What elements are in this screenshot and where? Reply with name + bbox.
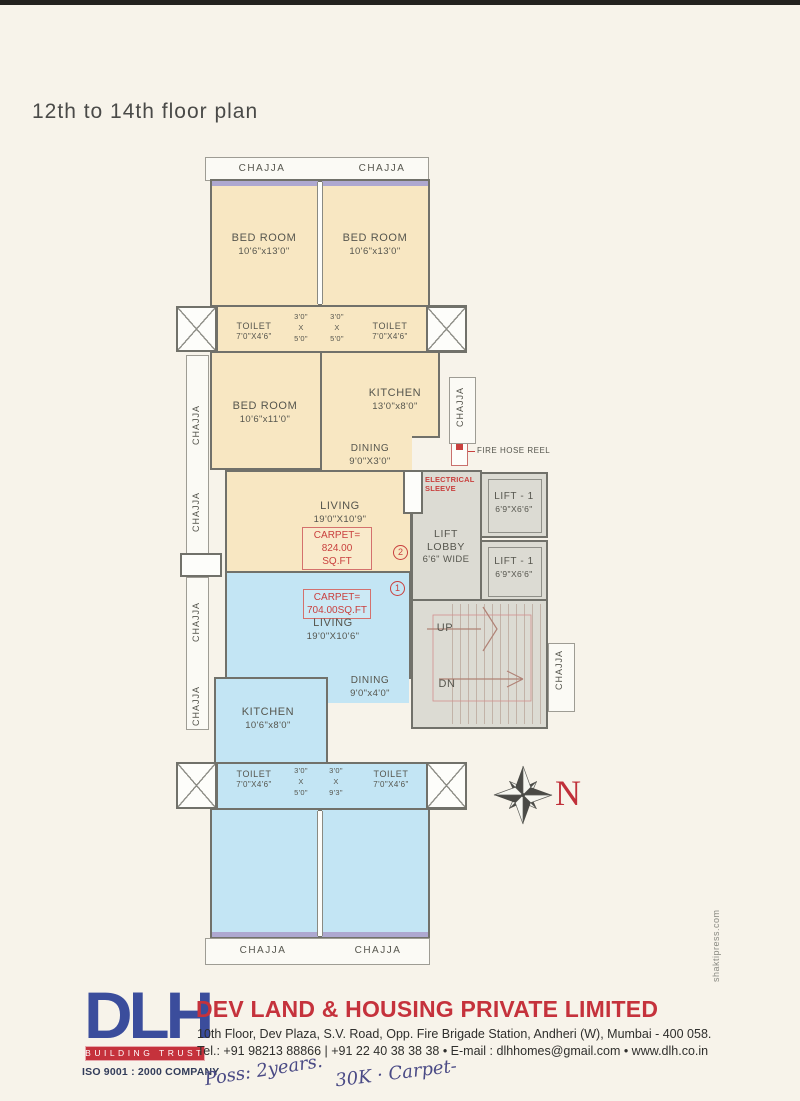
room-dims: 10'6"x8'0" xyxy=(218,720,318,732)
room-dims: 7'0"X4'6" xyxy=(218,780,290,790)
label-passage-t2: 3'0" X 5'0" xyxy=(324,312,350,345)
label-living-b: LIVING 19'0"X10'6" xyxy=(288,617,378,643)
dim-line: X xyxy=(288,323,314,334)
room-name: TOILET xyxy=(352,321,428,332)
carpet-line: 704.00SQ.FT xyxy=(307,604,367,617)
room-name: TOILET xyxy=(218,769,290,780)
room-name: LIVING xyxy=(288,617,378,631)
room-dims: 7'0"X4'6" xyxy=(354,780,428,790)
dim-line: 5'0" xyxy=(324,334,350,345)
chajja-label: CHAJJA xyxy=(191,492,201,532)
label-lift-lobby: LIFT LOBBY 6'6" WIDE xyxy=(415,528,477,566)
label-bedroom-t2: BED ROOM 10'6"x13'0" xyxy=(325,232,425,258)
room-dims: 10'6"x13'0" xyxy=(325,246,425,258)
dim-line: 9'3" xyxy=(322,788,350,799)
dim-line: 5'0" xyxy=(288,788,314,799)
carpet-line: 824.00 SQ.FT xyxy=(306,542,368,568)
room-dims: 9'0"x4'0" xyxy=(335,688,405,700)
label-dining-t: DINING 9'0"X3'0" xyxy=(335,443,405,467)
scanned-page: 12th to 14th floor plan CHAJJA CHAJJA xyxy=(0,0,800,1101)
chajja-label: CHAJJA xyxy=(228,945,298,956)
wall-cavity xyxy=(317,182,323,304)
dlh-logo: DLH xyxy=(84,986,210,1044)
room-name: LIVING xyxy=(295,500,385,514)
label-dining-b: DINING 9'0"x4'0" xyxy=(335,675,405,699)
room-dims: 10'6"x11'0" xyxy=(215,414,315,426)
room-dims: 19'0"X10'9" xyxy=(295,514,385,526)
ann-line: ELECTRICAL xyxy=(425,475,481,484)
room-name: UP xyxy=(430,622,460,636)
label-toilet-b1: TOILET 7'0"X4'6" xyxy=(218,769,290,790)
room-dims: 10'6"x13'0" xyxy=(214,246,314,258)
room-dims: 13'0"x8'0" xyxy=(345,401,445,413)
room-dims: 7'0"X4'6" xyxy=(218,332,290,342)
stair-arrows xyxy=(411,599,548,729)
chajja-label: CHAJJA xyxy=(227,163,297,174)
logo-iso-text: ISO 9001 : 2000 COMPANY xyxy=(82,1066,219,1078)
label-toilet-t2: TOILET 7'0"X4'6" xyxy=(352,321,428,342)
duct-top-right xyxy=(426,306,467,352)
logo-tagline: BUILDING TRUST xyxy=(85,1046,205,1061)
label-stairs-up: UP xyxy=(430,622,460,636)
fire-hose-reel-label: FIRE HOSE REEL xyxy=(477,446,550,455)
wall-block xyxy=(180,553,222,577)
scan-edge xyxy=(0,0,800,5)
dim-line: X xyxy=(288,777,314,788)
dim-line: 3'0" xyxy=(322,766,350,777)
dim-line: 3'0" xyxy=(288,312,314,323)
label-lift-2: LIFT - 1 6'9"X6'6" xyxy=(482,556,546,579)
room-name: KITCHEN xyxy=(218,706,318,720)
room-dims: 7'0"X4'6" xyxy=(352,332,428,342)
dim-line: X xyxy=(324,323,350,334)
label-toilet-b2: TOILET 7'0"X4'6" xyxy=(354,769,428,790)
chajja-label: CHAJJA xyxy=(347,163,417,174)
chajja-label: CHAJJA xyxy=(343,945,413,956)
carpet-area-upper: CARPET= 824.00 SQ.FT xyxy=(302,527,372,570)
label-passage-b1: 3'0" X 5'0" xyxy=(288,766,314,799)
room-bedroom-bottom-left xyxy=(210,808,320,939)
wall-cavity xyxy=(317,811,323,936)
room-name: KITCHEN xyxy=(345,387,445,401)
duct-bottom-right xyxy=(426,762,467,809)
label-kitchen-t: KITCHEN 13'0"x8'0" xyxy=(345,387,445,413)
label-bedroom-t1: BED ROOM 10'6"x13'0" xyxy=(214,232,314,258)
room-dims: 9'0"X3'0" xyxy=(335,456,405,468)
dim-line: X xyxy=(322,777,350,788)
room-name: BED ROOM xyxy=(325,232,425,246)
room-name: LOBBY xyxy=(415,541,477,554)
room-name: DN xyxy=(432,678,462,692)
chajja-label: CHAJJA xyxy=(191,405,201,445)
room-dims: 6'6" WIDE xyxy=(415,554,477,566)
room-dims: 6'9"X6'6" xyxy=(482,569,546,580)
compass-rose-icon xyxy=(492,764,554,826)
carpet-line: CARPET= xyxy=(307,591,367,604)
north-label: N xyxy=(555,772,581,814)
label-living-t: LIVING 19'0"X10'9" xyxy=(295,500,385,526)
chajja-label: CHAJJA xyxy=(191,686,201,726)
room-name: LIFT - 1 xyxy=(482,556,546,569)
chajja-label: CHAJJA xyxy=(191,602,201,642)
duct-bottom-left xyxy=(176,762,217,809)
carpet-line: CARPET= xyxy=(306,529,368,542)
room-name: DINING xyxy=(335,443,405,456)
dim-line: 3'0" xyxy=(324,312,350,323)
chajja-label: CHAJJA xyxy=(554,650,564,690)
label-passage-t1: 3'0" X 5'0" xyxy=(288,312,314,345)
unit-number-2: 2 xyxy=(393,545,408,560)
duct-top-left xyxy=(176,306,217,352)
room-name: TOILET xyxy=(218,321,290,332)
ann-line: SLEEVE xyxy=(425,484,481,493)
room-name: BED ROOM xyxy=(215,400,315,414)
room-name: BED ROOM xyxy=(214,232,314,246)
leader-line xyxy=(468,451,475,452)
dim-line: 5'0" xyxy=(288,334,314,345)
label-passage-b2: 3'0" X 9'3" xyxy=(322,766,350,799)
room-dims: 6'9"X6'6" xyxy=(482,504,546,515)
label-lift-1: LIFT - 1 6'9"X6'6" xyxy=(482,491,546,514)
carpet-area-lower: CARPET= 704.00SQ.FT xyxy=(303,589,371,619)
unit-number-1: 1 xyxy=(390,581,405,596)
label-kitchen-b: KITCHEN 10'6"x8'0" xyxy=(218,706,318,732)
room-dims: 19'0"X10'6" xyxy=(288,631,378,643)
chajja-label: CHAJJA xyxy=(455,387,465,427)
company-name: DEV LAND & HOUSING PRIVATE LIMITED xyxy=(196,996,658,1023)
electrical-sleeve-label: ELECTRICAL SLEEVE xyxy=(425,475,481,493)
room-name: LIFT xyxy=(415,528,477,541)
company-address: 10th Floor, Dev Plaza, S.V. Road, Opp. F… xyxy=(197,1027,711,1041)
label-stairs-dn: DN xyxy=(432,678,462,692)
room-bedroom-bottom-right xyxy=(320,808,430,939)
press-watermark: shaktipress.com xyxy=(711,892,721,982)
label-bedroom-t3: BED ROOM 10'6"x11'0" xyxy=(215,400,315,426)
room-name: DINING xyxy=(335,675,405,688)
label-toilet-t1: TOILET 7'0"X4'6" xyxy=(218,321,290,342)
page-title: 12th to 14th floor plan xyxy=(32,100,258,124)
dim-line: 3'0" xyxy=(288,766,314,777)
handwritten-note-carpet: 30K · Carpet- xyxy=(334,1056,458,1092)
room-name: LIFT - 1 xyxy=(482,491,546,504)
electrical-sleeve-duct xyxy=(403,470,423,514)
room-name: TOILET xyxy=(354,769,428,780)
